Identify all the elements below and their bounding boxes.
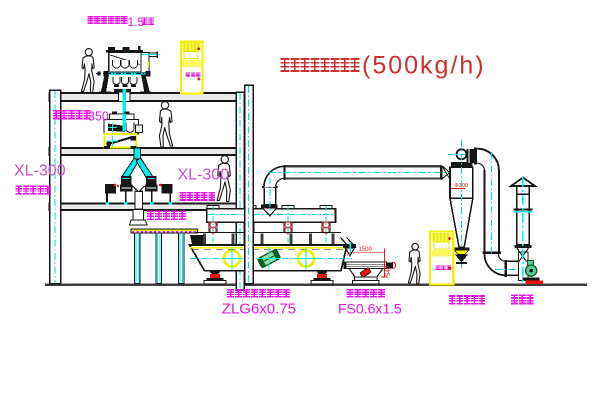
svg-text:XL-300: XL-300 xyxy=(178,167,230,184)
svg-text:FS0.6x1.5: FS0.6x1.5 xyxy=(338,301,402,317)
svg-text:1500: 1500 xyxy=(359,247,373,253)
svg-text:XL-300: XL-300 xyxy=(14,163,66,180)
svg-text:ZLG6x0.75: ZLG6x0.75 xyxy=(222,301,296,318)
svg-text:350: 350 xyxy=(88,110,109,124)
svg-text:(500kg/h): (500kg/h) xyxy=(362,52,486,80)
svg-text:540: 540 xyxy=(386,265,392,276)
